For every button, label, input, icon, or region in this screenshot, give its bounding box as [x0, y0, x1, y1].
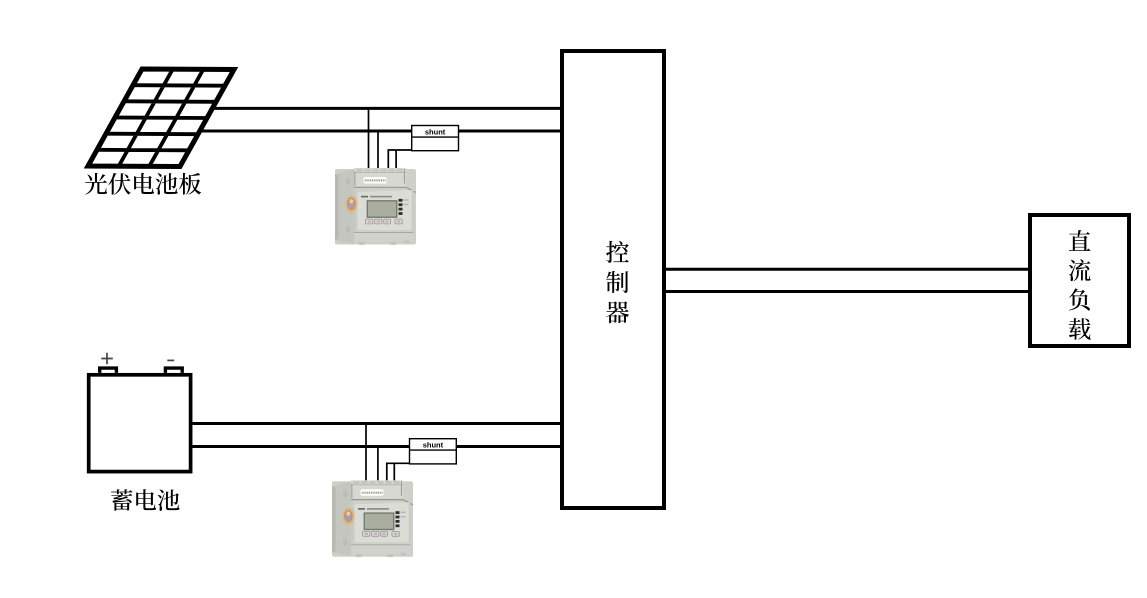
svg-text:shunt: shunt	[423, 440, 444, 449]
svg-text:shunt: shunt	[425, 127, 446, 136]
